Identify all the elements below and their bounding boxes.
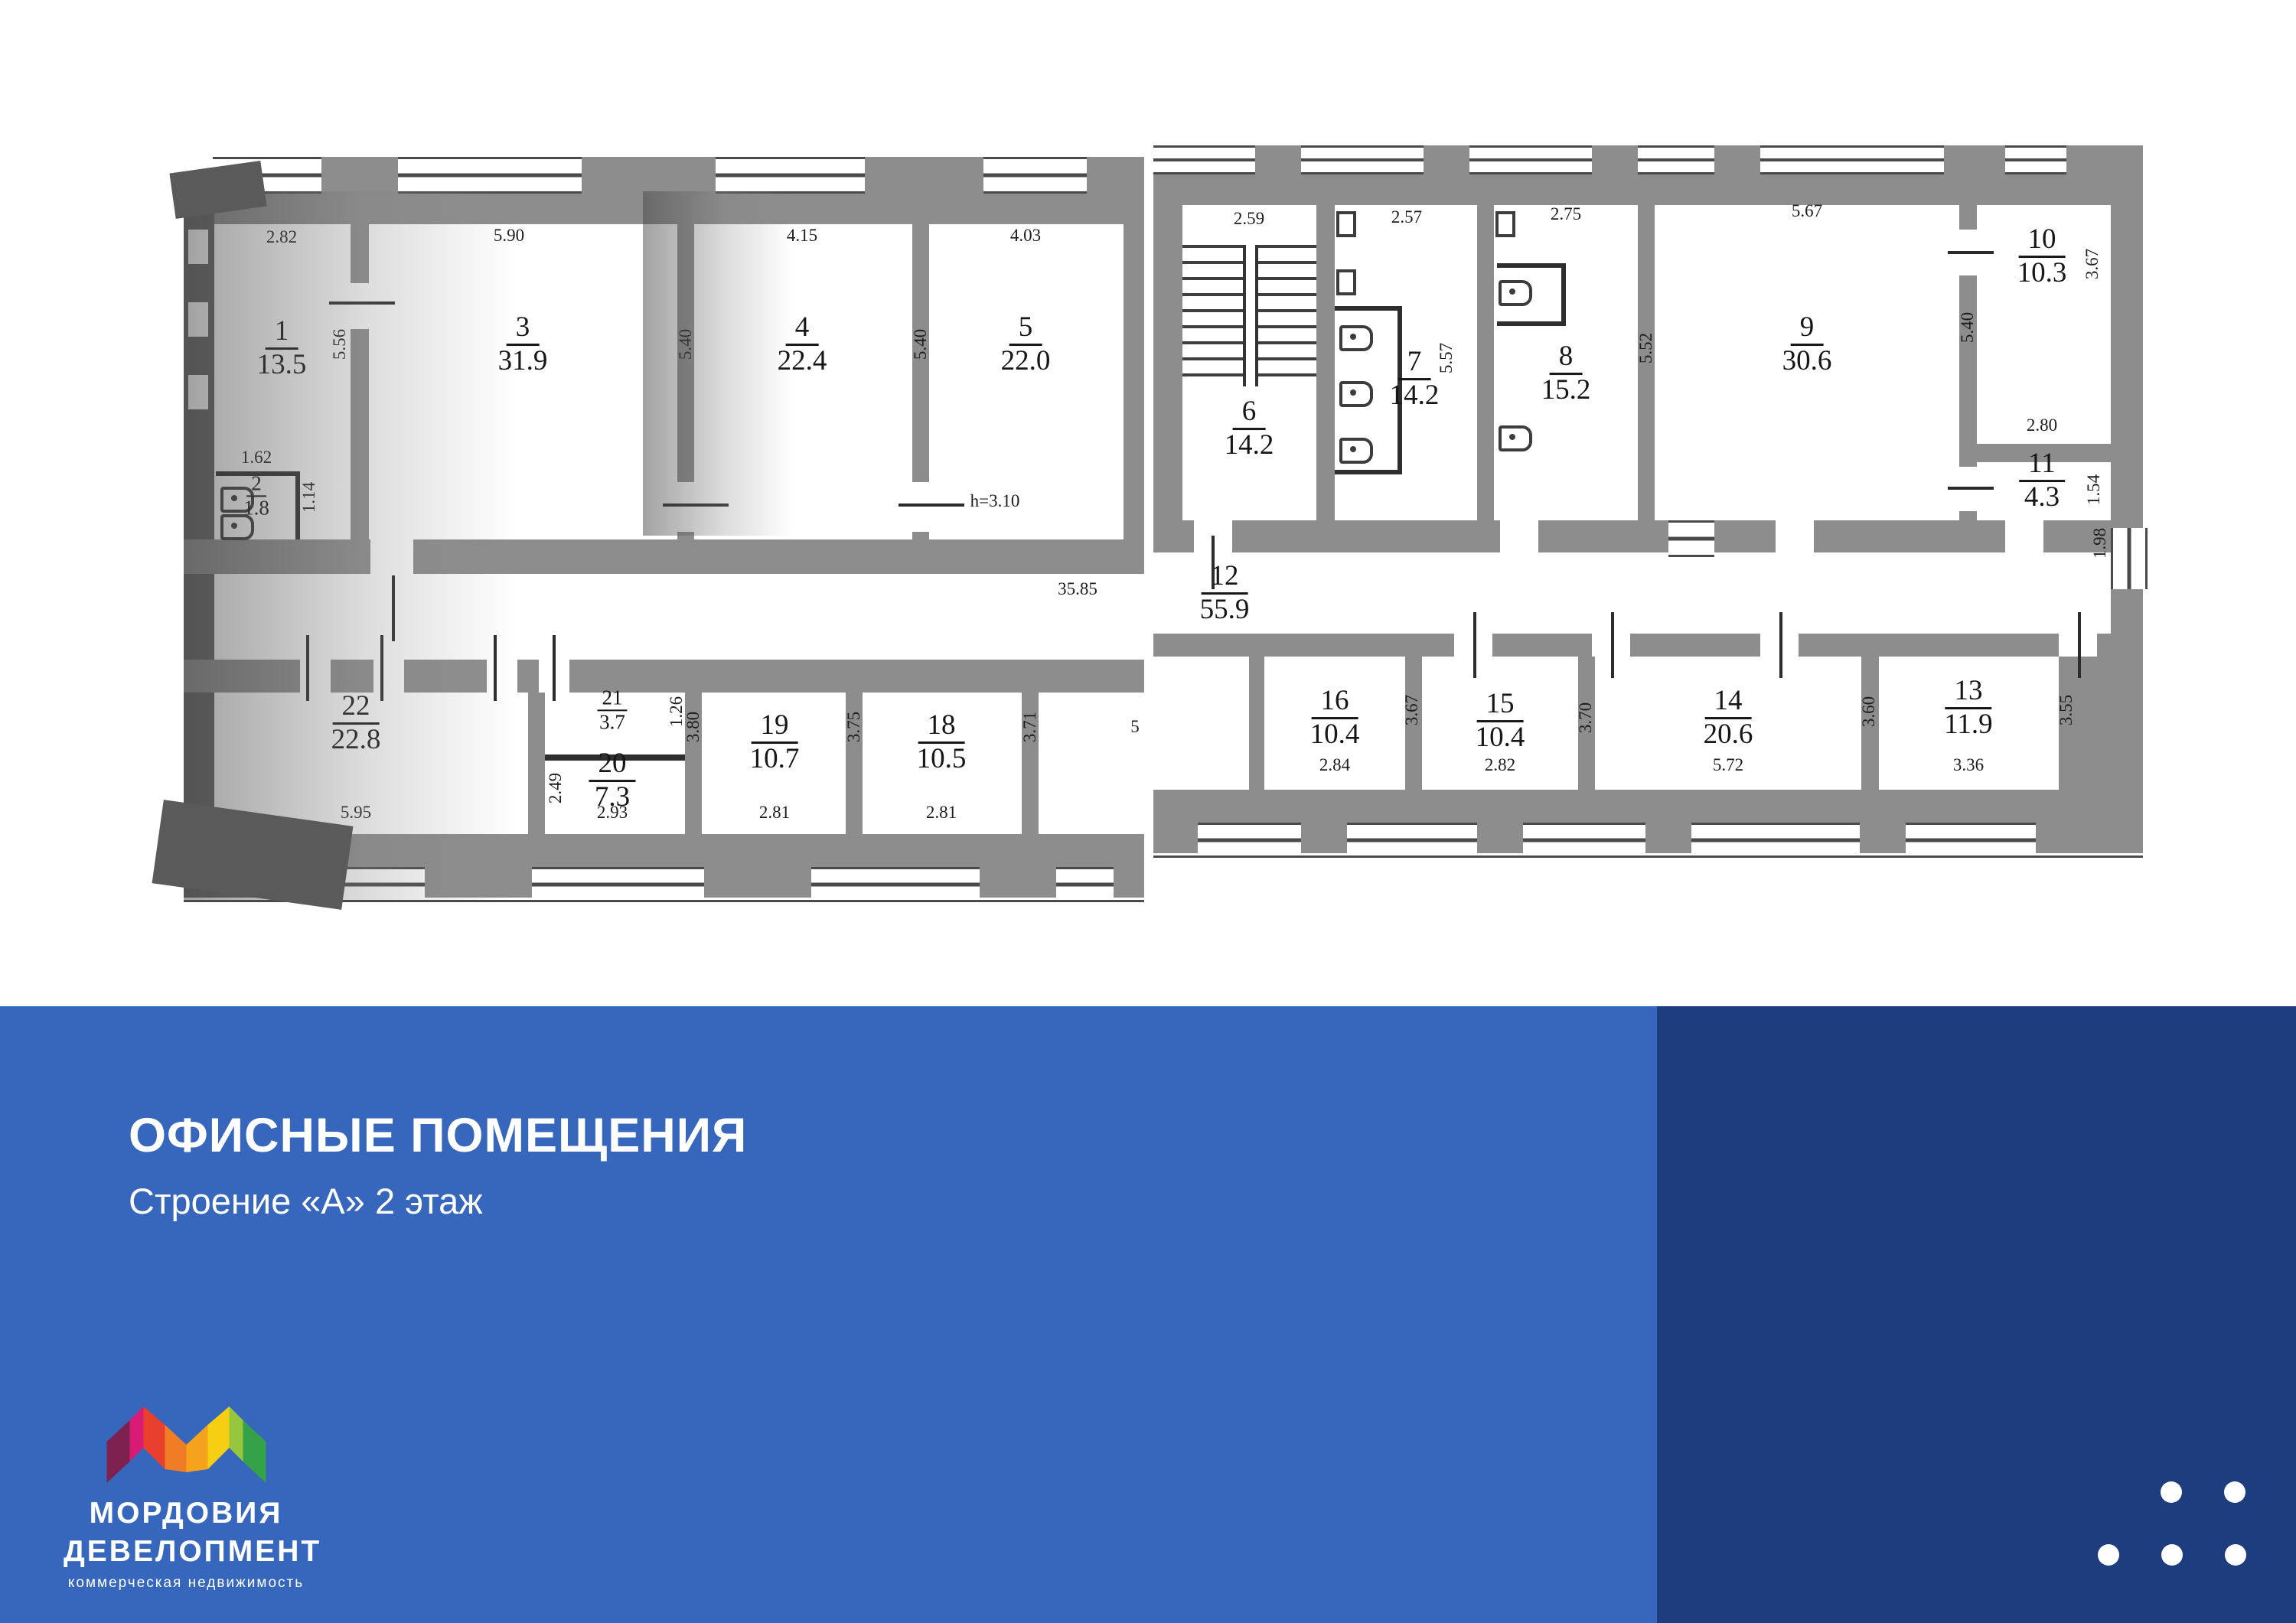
dimension-tick	[306, 635, 309, 701]
window-pier	[704, 867, 811, 898]
wall	[1335, 306, 1402, 311]
room-label-1: 113.5	[257, 316, 307, 380]
dimension-label: 3.71	[1020, 712, 1040, 742]
wall	[1335, 470, 1402, 474]
room-number: 2	[246, 472, 266, 497]
room-area: 31.9	[498, 346, 548, 376]
decorative-dot	[2161, 1481, 2182, 1503]
door-opening	[1500, 520, 1538, 552]
toilet-icon	[1499, 280, 1532, 306]
window-pier	[425, 867, 532, 898]
room-label-8: 815.2	[1541, 341, 1591, 406]
room-area: 1.8	[243, 497, 269, 520]
room-number: 21	[598, 686, 628, 711]
window-pier	[1087, 157, 1144, 224]
room-area: 15.2	[1541, 375, 1591, 406]
room-area: 22.8	[331, 725, 381, 755]
room-number: 18	[918, 710, 965, 744]
decorative-dot	[2161, 1544, 2183, 1566]
room-label-16: 1610.4	[1310, 686, 1360, 750]
room-label-7: 714.2	[1390, 347, 1440, 411]
room-number: 11	[2019, 448, 2065, 482]
wall	[1497, 321, 1566, 326]
dimension-label: 2.82	[266, 227, 297, 247]
room-area: 20.6	[1704, 719, 1753, 750]
slide: 113.521.8331.9422.4522.0614.2714.2815.29…	[0, 0, 2296, 1623]
room-area: 10.4	[1476, 722, 1525, 753]
door-opening	[351, 283, 369, 329]
floor-plan: 113.521.8331.9422.4522.0614.2714.2815.29…	[0, 0, 2296, 995]
dimension-label: 5.40	[911, 329, 931, 360]
dimension-label: 1.54	[2084, 474, 2104, 505]
wall	[1477, 205, 1494, 520]
wall	[184, 191, 214, 867]
dimension-tick	[1948, 251, 1994, 254]
dimension-label: 1.14	[299, 482, 319, 513]
dimension-tick	[899, 504, 964, 507]
room-number: 14	[1705, 686, 1752, 719]
dimension-label: 5.95	[341, 803, 371, 823]
room-label-9: 930.6	[1782, 312, 1832, 376]
room-label-6: 614.2	[1225, 396, 1274, 461]
room-label-3: 331.9	[498, 312, 548, 376]
window-pier	[2066, 145, 2143, 205]
room-number: 6	[1233, 396, 1266, 430]
dimension-label: 2.57	[1391, 207, 1422, 227]
room-area: 3.7	[598, 712, 628, 734]
page-seam	[1144, 99, 1153, 941]
dimension-label: 2.59	[1234, 209, 1264, 229]
door-opening	[188, 230, 208, 264]
window-pier	[1592, 145, 1638, 205]
door-opening	[677, 482, 694, 532]
room-label-19: 1910.7	[750, 710, 800, 774]
room-area: 10.3	[2017, 258, 2067, 288]
scan-corner	[152, 800, 354, 910]
room-number: 15	[1477, 689, 1524, 722]
dimension-label: 2.49	[546, 773, 566, 803]
room-area: 10.5	[917, 744, 967, 774]
dimension-label: 5	[1130, 717, 1140, 737]
sink-icon	[1336, 211, 1356, 237]
room-number: 3	[507, 312, 540, 346]
window-pier	[1424, 145, 1469, 205]
room-label-21: 213.7	[598, 686, 628, 733]
room-label-18: 1810.5	[917, 710, 967, 774]
room-number: 8	[1550, 341, 1583, 375]
window	[2111, 528, 2148, 589]
door-opening	[300, 660, 331, 693]
dimension-label: 5.40	[1958, 312, 1978, 343]
room-area: 10.4	[1310, 719, 1360, 750]
dimension-label: 2.81	[926, 803, 957, 823]
page-title: ОФИСНЫЕ ПОМЕЩЕНИЯ	[129, 1108, 747, 1163]
dimension-label: 1.62	[241, 448, 272, 468]
room-number: 7	[1398, 347, 1431, 380]
dimension-label: 2.81	[759, 803, 790, 823]
window	[1668, 520, 1714, 557]
dimension-label: 2.82	[1485, 755, 1515, 775]
room-area: 14.2	[1390, 380, 1440, 411]
window-pier	[1944, 145, 2005, 205]
toilet-icon	[1339, 381, 1373, 407]
dimension-tick	[663, 504, 729, 507]
dimension-tick	[392, 575, 395, 641]
door-opening	[188, 302, 208, 337]
dimension-label: 4.03	[1010, 226, 1041, 246]
dimension-tick	[1611, 612, 1614, 678]
window-pier	[1152, 823, 1198, 853]
wall	[528, 693, 545, 834]
bottom-band-dark	[1657, 1006, 2296, 1623]
window-pier	[321, 157, 398, 224]
room-area: 11.9	[1944, 709, 1992, 740]
dimension-label: 3.67	[2082, 249, 2102, 279]
room-number: 19	[752, 710, 798, 744]
hero-text-block: ОФИСНЫЕ ПОМЕЩЕНИЯ Строение «А» 2 этаж	[129, 1108, 747, 1222]
window-pier	[2036, 823, 2143, 853]
dimension-label: 3.55	[2056, 695, 2076, 725]
dimension-label: 5.57	[1437, 343, 1456, 373]
dimension-label: 5.56	[330, 329, 350, 360]
window-pier	[1114, 867, 1144, 898]
room-number: 16	[1312, 686, 1358, 719]
window-pier	[1860, 823, 1906, 853]
wall	[1152, 172, 1182, 520]
room-label-2: 21.8	[243, 472, 269, 519]
dimension-label: h=3.10	[970, 491, 1020, 511]
wall	[1124, 191, 1144, 539]
sink-icon	[1495, 211, 1515, 237]
window-pier	[980, 867, 1056, 898]
wall	[1249, 657, 1264, 790]
room-label-13: 1311.9	[1944, 676, 1992, 740]
door-opening	[2005, 520, 2043, 552]
room-number: 9	[1791, 312, 1824, 346]
room-area: 30.6	[1782, 346, 1832, 376]
dimension-label: 4.15	[787, 226, 817, 246]
wall	[1152, 520, 2143, 552]
brand-name-line2: ДЕВЕЛОПМЕНТ	[64, 1535, 308, 1569]
window-pier	[1645, 823, 1691, 853]
wall	[1316, 205, 1335, 520]
wall	[1152, 790, 2143, 823]
room-label-10: 1010.3	[2017, 224, 2067, 288]
window-pier	[1714, 145, 1760, 205]
dimension-label: 2.80	[2027, 416, 2057, 435]
toilet-icon	[1499, 425, 1532, 451]
dimension-tick	[1948, 487, 1994, 490]
dimension-label: 3.36	[1953, 755, 1984, 775]
room-number: 10	[2019, 224, 2066, 258]
brand-tagline: коммерческая недвижимость	[64, 1575, 308, 1592]
door-opening	[912, 482, 929, 532]
page-subtitle: Строение «А» 2 этаж	[129, 1180, 747, 1222]
door-opening	[188, 375, 208, 409]
brand-name-line1: МОРДОВИЯ	[64, 1497, 308, 1530]
dimension-tick	[1779, 612, 1782, 678]
dimension-label: 3.80	[683, 712, 703, 742]
window-pier	[1255, 145, 1301, 205]
room-area: 10.7	[750, 744, 800, 774]
dimension-label: 3.60	[1859, 696, 1879, 727]
dimension-label: 5.52	[1636, 333, 1656, 363]
window-pier	[865, 157, 983, 224]
dimension-label: 2.84	[1319, 755, 1350, 775]
wall	[184, 539, 1144, 574]
staircase-rail	[1243, 245, 1258, 386]
dimension-label: 5.90	[494, 226, 524, 246]
dimension-label: 2.93	[597, 803, 628, 823]
door-opening	[373, 660, 404, 693]
window-pier	[582, 157, 716, 224]
room-label-22: 2222.8	[331, 691, 381, 755]
dimension-label: 3.70	[1576, 702, 1596, 733]
dimension-label: 5.72	[1713, 755, 1743, 775]
room-number: 5	[1009, 312, 1042, 346]
door-opening	[370, 539, 413, 574]
toilet-icon	[1339, 438, 1373, 464]
dimension-tick	[494, 635, 497, 701]
window-pier	[1301, 823, 1347, 853]
room-number: 13	[1945, 676, 1991, 709]
room-number: 1	[266, 316, 298, 350]
dimension-label: 5.40	[676, 329, 696, 360]
logo-m-icon	[93, 1399, 279, 1483]
room-area: 22.0	[1001, 346, 1051, 376]
dimension-label: 5.67	[1792, 201, 1822, 221]
wall	[351, 224, 369, 539]
room-number: 4	[786, 312, 819, 346]
room-number: 22	[333, 691, 380, 725]
window-pier	[1477, 823, 1523, 853]
dimension-label: 35.85	[1058, 579, 1097, 599]
decorative-dot	[2224, 1481, 2245, 1503]
dimension-label: 3.75	[844, 712, 864, 742]
decorative-dot	[2225, 1544, 2246, 1566]
room-label-4: 422.4	[778, 312, 827, 376]
wall	[1497, 263, 1566, 268]
room-area: 55.9	[1200, 595, 1250, 625]
room-area: 14.2	[1225, 430, 1274, 461]
room-area: 4.3	[2019, 482, 2065, 513]
door-opening	[487, 660, 517, 693]
room-area: 13.5	[257, 350, 307, 380]
dimension-tick	[2078, 612, 2081, 678]
room-label-15: 1510.4	[1476, 689, 1525, 753]
sink-icon	[1336, 269, 1356, 295]
room-label-5: 522.0	[1001, 312, 1051, 376]
dimension-label: 2.75	[1551, 204, 1581, 224]
room-label-14: 1420.6	[1704, 686, 1753, 750]
dimension-label: 1.98	[2090, 528, 2110, 559]
room-number: 12	[1202, 561, 1248, 595]
dimension-tick	[1473, 612, 1476, 678]
wall	[1152, 634, 2143, 657]
dimension-label: 3.67	[1402, 695, 1422, 725]
dimension-tick	[380, 635, 383, 701]
door-opening	[1776, 520, 1814, 552]
room-label-12: 1255.9	[1200, 561, 1250, 625]
decorative-dot	[2098, 1544, 2119, 1566]
wall	[1561, 268, 1566, 326]
room-area: 22.4	[778, 346, 827, 376]
brand-logo: МОРДОВИЯ ДЕВЕЛОПМЕНТ коммерческая недвиж…	[64, 1399, 308, 1592]
dimension-tick	[329, 301, 395, 305]
toilet-icon	[1339, 325, 1373, 351]
room-label-11: 114.3	[2019, 448, 2065, 513]
dimension-tick	[553, 635, 556, 701]
room-number: 20	[589, 748, 636, 782]
